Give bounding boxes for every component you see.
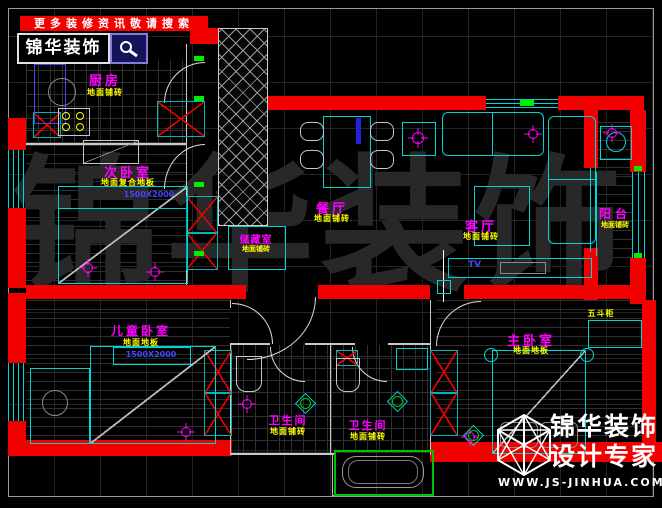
jinhua-cube-logo xyxy=(496,414,552,476)
bathroom-bottom-wall xyxy=(230,453,334,455)
finish-label-storage: 地面铺砖 xyxy=(230,244,282,254)
light-crosshair-icon xyxy=(408,128,428,148)
wall-segment xyxy=(8,208,26,288)
stair-shaft-hatch xyxy=(218,28,268,226)
chair xyxy=(42,390,68,416)
table-runner xyxy=(356,118,361,144)
dining-chair xyxy=(370,122,394,141)
bed-size-children: 1500X2000 xyxy=(113,350,189,359)
dresser xyxy=(83,140,139,164)
search-button xyxy=(110,33,148,64)
dimension-marker xyxy=(437,280,451,294)
dimension-line xyxy=(443,250,444,302)
bathroom-top-wall xyxy=(388,343,430,345)
viewport-border-top xyxy=(8,8,654,9)
finish-label-master-bedroom: 地面地板 xyxy=(496,345,566,356)
bathroom-divider-line xyxy=(330,345,331,455)
footer-brand-line1: 锦华装饰 xyxy=(546,413,662,441)
bed-headboard-line xyxy=(58,208,186,209)
wardrobe-hatch xyxy=(430,392,458,436)
bathroom-top-wall xyxy=(305,343,355,345)
promo-brand-box: 锦华装饰 xyxy=(17,33,110,64)
dining-chair xyxy=(300,150,324,169)
wardrobe-hatch xyxy=(430,350,458,394)
wall-segment xyxy=(558,96,644,110)
finish-label-dining: 地面铺砖 xyxy=(300,213,364,224)
switch-mark xyxy=(634,166,642,171)
sofa xyxy=(548,116,596,244)
wall-segment xyxy=(8,118,26,150)
dining-chair xyxy=(370,150,394,169)
burner-icon xyxy=(62,123,70,131)
burner-icon xyxy=(62,112,70,120)
bathtub-inner xyxy=(348,460,418,484)
wall-segment xyxy=(8,293,26,363)
secondary-bed xyxy=(58,186,188,284)
light-crosshair-icon xyxy=(79,259,97,277)
washbasin xyxy=(396,348,428,370)
viewport-border-bottom xyxy=(8,496,654,497)
search-icon xyxy=(118,39,140,59)
wall-segment xyxy=(266,96,486,110)
switch-mark xyxy=(194,96,204,101)
wardrobe-hatch xyxy=(186,196,218,234)
finish-label-bathroom2: 地面铺砖 xyxy=(342,431,394,442)
bed-size-secondary: 1500X2000 xyxy=(112,190,186,199)
footer-website: WWW.JS-JINHUA.COM xyxy=(498,476,662,489)
dining-chair xyxy=(300,122,324,141)
column-hatch xyxy=(157,101,205,137)
light-crosshair-icon xyxy=(177,423,195,441)
nightstand xyxy=(580,348,594,362)
switch-mark xyxy=(634,253,642,258)
switch-mark xyxy=(194,182,204,187)
light-crosshair-icon xyxy=(238,395,256,413)
light-crosshair-icon xyxy=(603,124,621,142)
floor-plan-canvas: 锦华装饰 xyxy=(0,0,662,508)
promo-banner: 更多装修资讯敬请搜索 xyxy=(20,16,208,31)
finish-label-balcony: 地面铺砖 xyxy=(594,220,636,230)
toilet xyxy=(236,356,262,392)
burner-icon xyxy=(76,123,84,131)
finish-label-secondary-bedroom: 地面复合地板 xyxy=(93,177,163,188)
switch-mark xyxy=(194,251,204,256)
wall-segment xyxy=(318,285,430,299)
drain-circle-icon xyxy=(468,430,479,441)
wall-segment xyxy=(186,285,246,299)
window-left-lower xyxy=(8,363,24,421)
switch-mark xyxy=(194,56,204,61)
window-left-upper xyxy=(8,150,24,208)
wall-segment xyxy=(630,110,646,172)
toilet xyxy=(336,358,360,392)
burner-icon xyxy=(76,112,84,120)
dining-table xyxy=(323,116,371,188)
tv-set xyxy=(500,262,546,274)
tv-label: TV xyxy=(468,260,481,270)
drain-circle-icon xyxy=(300,398,311,409)
wall-segment xyxy=(464,285,642,299)
five-drawer-chest xyxy=(588,320,642,348)
dresser-label: 五斗柜 xyxy=(576,308,626,319)
light-crosshair-icon xyxy=(146,263,164,281)
interior-wall-line xyxy=(230,300,231,308)
finish-label-living: 地面铺砖 xyxy=(448,231,514,242)
wall-segment xyxy=(26,285,186,299)
switch-mark xyxy=(520,100,534,106)
footer-brand-line2: 设计专家 xyxy=(546,443,662,471)
finish-label-children-bedroom: 地面地板 xyxy=(96,337,186,348)
light-crosshair-icon xyxy=(524,125,542,143)
children-bed xyxy=(90,346,216,444)
finish-label-kitchen: 地面铺砖 xyxy=(70,87,140,98)
drain-circle-icon xyxy=(392,396,403,407)
finish-label-bathroom1: 地面铺砖 xyxy=(262,426,314,437)
